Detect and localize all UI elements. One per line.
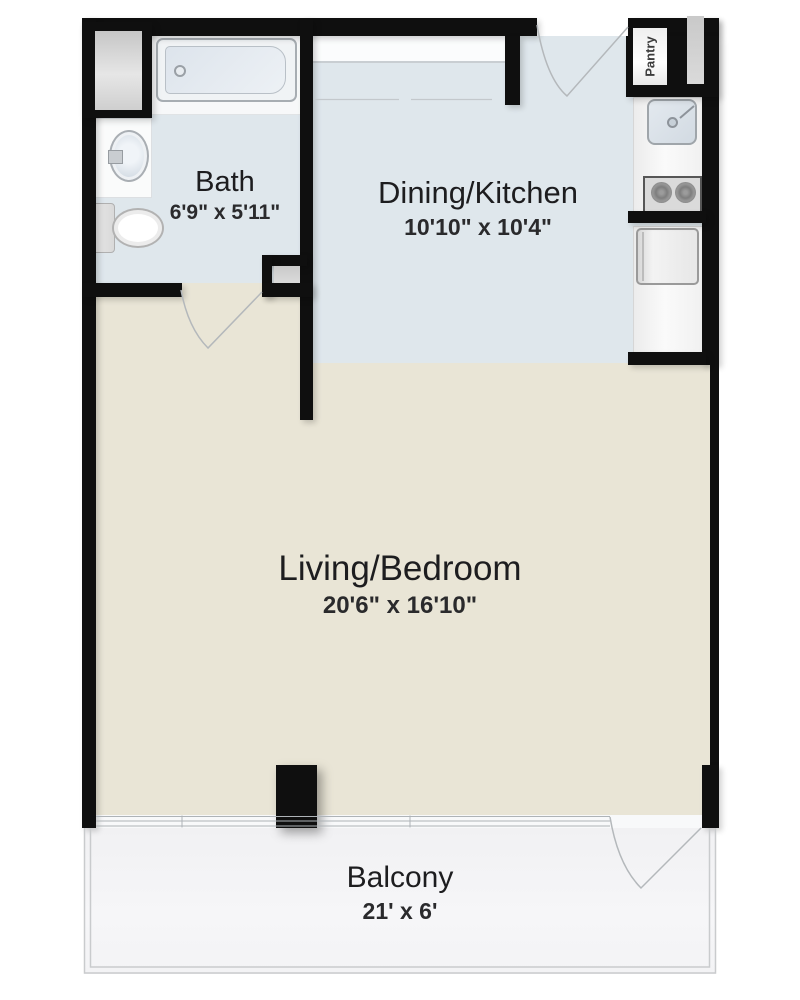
pantry-label: Pantry (643, 36, 658, 76)
refrigerator (636, 228, 699, 285)
kitchen-wall-stub-lower (628, 352, 706, 365)
pantry-closet: Pantry (633, 28, 667, 85)
kitchen-wall-stub-upper (628, 211, 706, 223)
bath-room-dims: 6'9" x 5'11" (130, 201, 320, 225)
bath-chase-wall-bottom (262, 283, 313, 297)
bath-sink-faucet-icon (108, 150, 123, 164)
kitchen-sink (647, 99, 697, 145)
bath-chase (274, 266, 300, 283)
dining-kitchen-room-dims: 10'10" x 10'4" (328, 214, 628, 241)
balcony-room-dims: 21' x 6' (300, 898, 500, 925)
floorplan-canvas: Pantry Bath 6'9" x 5'11" Dining/Kitchen … (0, 0, 800, 1000)
window-sill-band (96, 815, 716, 828)
balcony-label: Balcony 21' x 6' (300, 862, 500, 925)
kitchen-upper-counter (313, 36, 507, 63)
dining-kitchen-room-name: Dining/Kitchen (328, 177, 628, 210)
outer-wall-right-mid (710, 365, 719, 765)
living-bedroom-label: Living/Bedroom 20'6" x 16'10" (220, 551, 580, 620)
stove-burner-icon (651, 182, 672, 203)
balcony-room-name: Balcony (300, 862, 500, 894)
bath-bottom-wall (82, 283, 182, 297)
entry-wall-stub (505, 36, 520, 105)
living-bedroom-room-dims: 20'6" x 16'10" (220, 592, 580, 620)
linen-closet (95, 31, 142, 110)
outer-wall-right-lower (702, 765, 719, 828)
window-pier-column (276, 765, 317, 828)
stove (643, 176, 702, 213)
utility-chase-top-right (687, 16, 704, 84)
refrigerator-door-line (642, 232, 644, 281)
bath-room-name: Bath (130, 167, 320, 197)
bathtub-faucet-icon (174, 65, 186, 77)
outer-wall-left (82, 18, 96, 828)
bath-label: Bath 6'9" x 5'11" (130, 167, 320, 225)
dining-kitchen-label: Dining/Kitchen 10'10" x 10'4" (328, 177, 628, 241)
living-bedroom-room-name: Living/Bedroom (220, 551, 580, 588)
stove-burner-icon (675, 182, 696, 203)
kitchen-sink-drain-icon (667, 117, 678, 128)
bathtub (156, 38, 297, 102)
